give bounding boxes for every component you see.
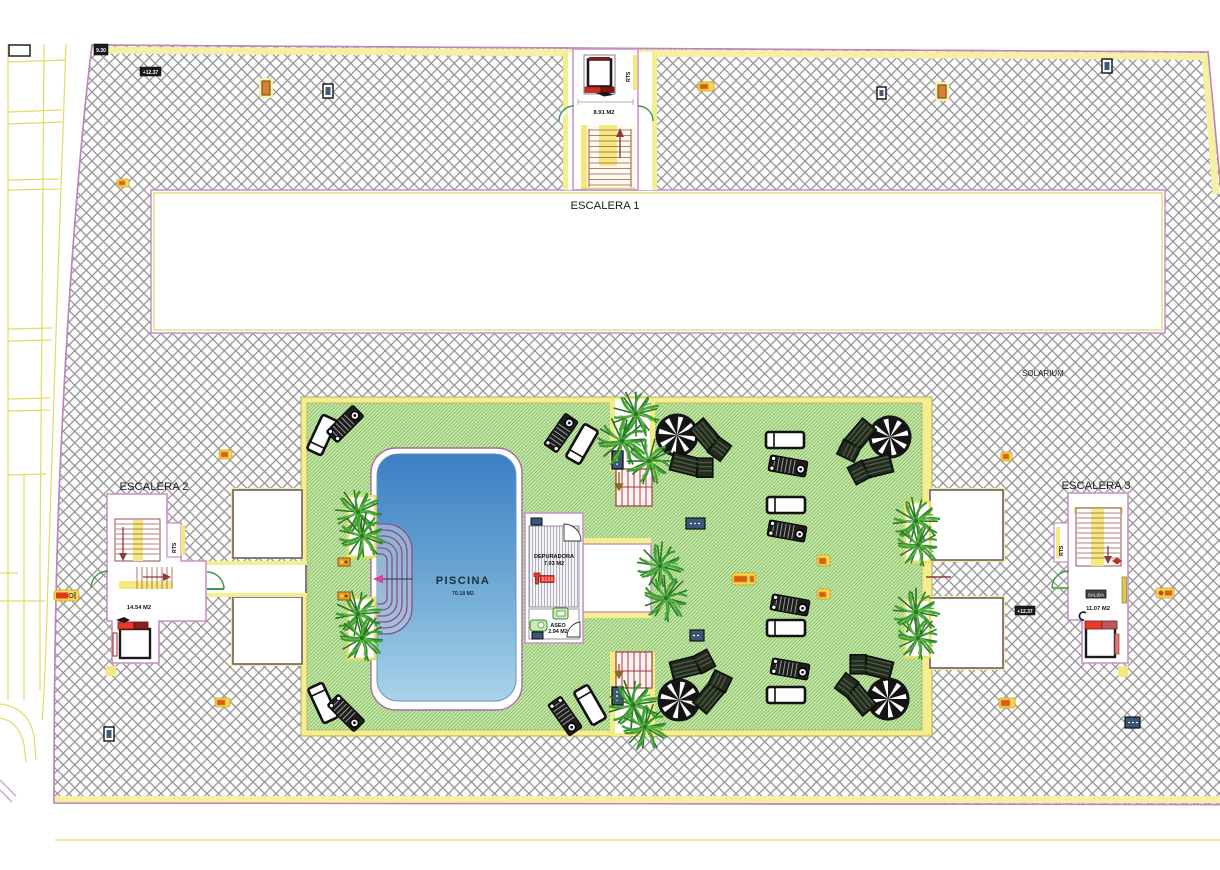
svg-text:2.94 M2: 2.94 M2 — [548, 629, 567, 635]
svg-text:RTS: RTS — [1059, 545, 1065, 556]
svg-text:8.91 M2: 8.91 M2 — [594, 110, 615, 116]
svg-text:14.54 M2: 14.54 M2 — [127, 605, 151, 611]
svg-text:ESCALERA 2: ESCALERA 2 — [119, 481, 188, 493]
svg-text:RTS: RTS — [626, 71, 632, 82]
svg-text:+12.37: +12.37 — [1017, 609, 1033, 615]
svg-text:7.03 M2: 7.03 M2 — [544, 561, 564, 567]
svg-text:SOLARIUM: SOLARIUM — [1022, 369, 1064, 378]
svg-text:PISCINA: PISCINA — [436, 575, 490, 587]
svg-text:11.07 M2: 11.07 M2 — [1086, 606, 1110, 612]
svg-text:SALIDA: SALIDA — [1088, 593, 1105, 598]
svg-text:9.30: 9.30 — [96, 48, 106, 54]
svg-text:RTS: RTS — [172, 542, 178, 553]
svg-text:70.18 M2: 70.18 M2 — [452, 591, 474, 597]
svg-text:+12.37: +12.37 — [143, 70, 159, 76]
svg-text:ESCALERA 1: ESCALERA 1 — [570, 200, 639, 212]
svg-text:ESCALERA 3: ESCALERA 3 — [1061, 480, 1130, 492]
svg-text:DEPURADORA: DEPURADORA — [534, 554, 574, 560]
